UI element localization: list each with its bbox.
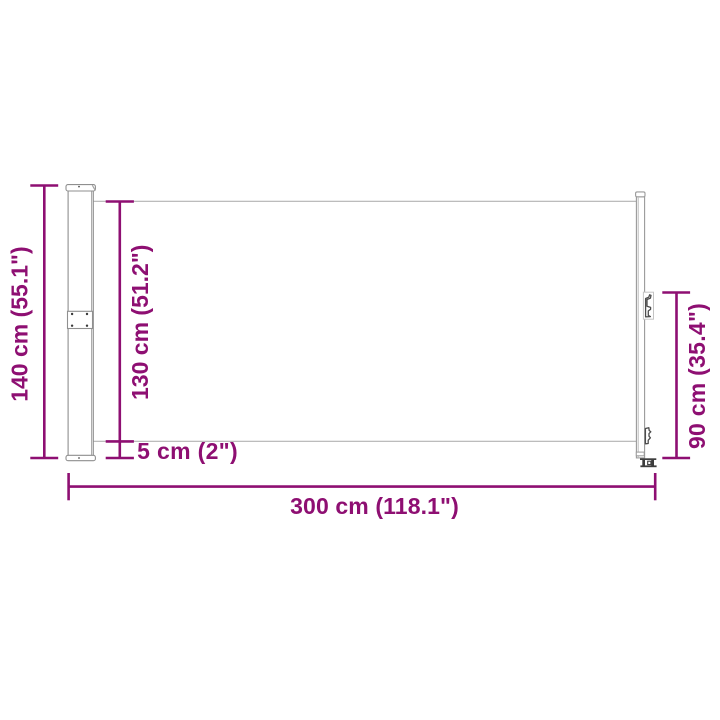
svg-text:5 cm (2"): 5 cm (2") xyxy=(137,438,238,464)
svg-text:140 cm (55.1"): 140 cm (55.1") xyxy=(7,246,33,401)
svg-text:130 cm (51.2"): 130 cm (51.2") xyxy=(127,245,153,400)
svg-text:300 cm (118.1"): 300 cm (118.1") xyxy=(290,493,459,519)
svg-text:90 cm (35.4"): 90 cm (35.4") xyxy=(684,303,710,449)
